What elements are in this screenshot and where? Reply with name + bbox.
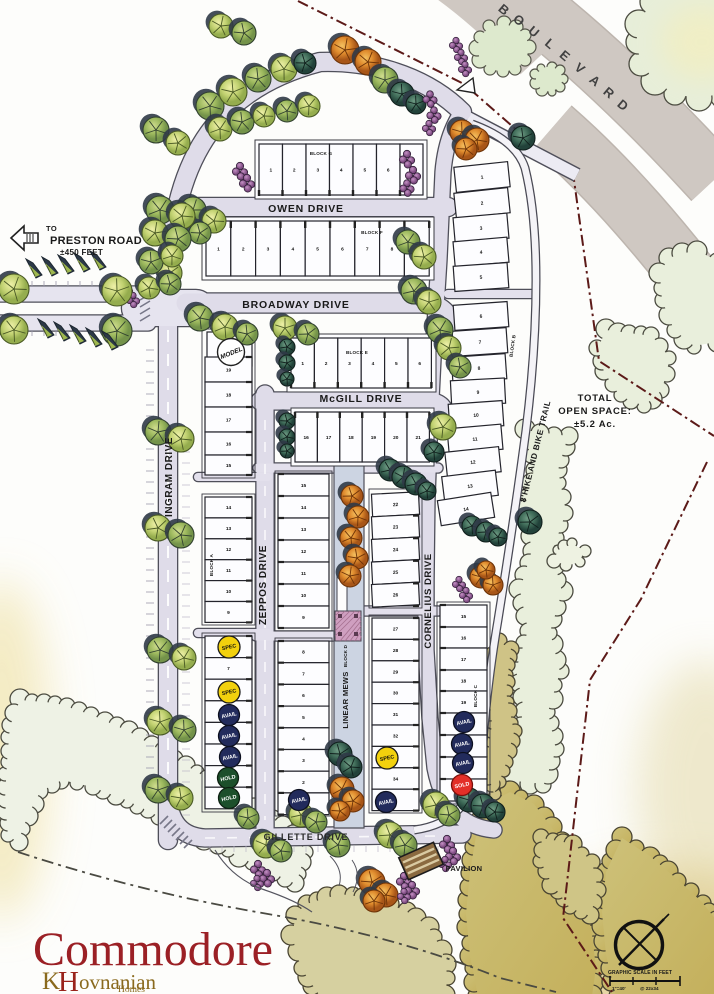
svg-text:INGRAM DRIVE: INGRAM DRIVE [164,437,175,517]
svg-text:7: 7 [227,666,230,672]
svg-text:11: 11 [472,437,478,443]
svg-text:13: 13 [301,527,307,533]
svg-text:12: 12 [226,547,232,553]
svg-text:6: 6 [418,361,421,367]
svg-text:24: 24 [393,547,399,553]
svg-text:10: 10 [301,593,307,599]
svg-text:19: 19 [371,435,377,441]
svg-text:25: 25 [393,570,399,576]
svg-text:18: 18 [461,678,467,684]
svg-text:ZEPPOS DRIVE: ZEPPOS DRIVE [258,545,269,625]
svg-text:7: 7 [302,671,305,677]
svg-text:22: 22 [393,502,399,508]
svg-text:BLOCK G: BLOCK G [310,151,333,156]
svg-text:4: 4 [372,361,375,367]
svg-text:21: 21 [416,435,422,441]
svg-text:4: 4 [291,246,294,252]
svg-text:GILLETTE DRIVE: GILLETTE DRIVE [264,832,349,842]
svg-text:BLOCK D: BLOCK D [343,644,348,667]
svg-text:29: 29 [393,669,399,675]
svg-text:17: 17 [226,417,232,423]
svg-text:±450 FEET: ±450 FEET [60,248,103,257]
svg-text:H: H [58,966,79,994]
svg-text:8: 8 [302,650,305,656]
svg-text:BLOCK F: BLOCK F [361,230,383,235]
svg-text:1"=40′: 1"=40′ [612,986,627,991]
svg-text:6: 6 [302,693,305,699]
svg-text:LINEAR MEWS: LINEAR MEWS [341,671,350,728]
svg-text:11: 11 [226,568,231,574]
svg-text:3: 3 [316,167,319,173]
svg-text:15: 15 [301,483,307,489]
svg-text:BLOCK A: BLOCK A [209,553,214,576]
svg-text:2: 2 [302,780,305,786]
svg-text:TOTAL: TOTAL [578,393,613,404]
svg-text:14: 14 [301,505,307,511]
svg-text:@ 22x34: @ 22x34 [640,986,659,991]
svg-text:16: 16 [461,635,467,641]
svg-text:TO: TO [46,224,57,233]
svg-text:30: 30 [393,691,399,697]
svg-text:1: 1 [217,246,220,252]
svg-text:27: 27 [393,627,399,633]
svg-text:32: 32 [393,734,399,740]
svg-text:34: 34 [393,776,399,782]
svg-text:20: 20 [393,435,399,441]
svg-text:19: 19 [461,700,467,706]
svg-text:2: 2 [325,361,328,367]
svg-text:9: 9 [227,610,230,616]
svg-text:3: 3 [267,246,270,252]
svg-text:5: 5 [395,361,398,367]
svg-text:12: 12 [301,549,307,555]
svg-text:17: 17 [326,435,332,441]
svg-text:10: 10 [226,589,232,595]
svg-text:5: 5 [316,246,319,252]
svg-text:GRAPHIC SCALE IN FEET: GRAPHIC SCALE IN FEET [608,970,672,976]
svg-text:11: 11 [301,571,306,577]
svg-text:PAVILION: PAVILION [446,864,483,873]
svg-text:BROADWAY DRIVE: BROADWAY DRIVE [242,299,349,311]
svg-text:15: 15 [461,614,467,620]
svg-text:13: 13 [226,526,232,532]
svg-text:26: 26 [393,592,399,598]
svg-text:3: 3 [348,361,351,367]
svg-text:CORNELIUS DRIVE: CORNELIUS DRIVE [423,553,434,648]
svg-text:18: 18 [348,435,354,441]
svg-text:OWEN DRIVE: OWEN DRIVE [268,203,344,215]
svg-text:8: 8 [391,246,394,252]
svg-text:Homes: Homes [118,985,145,994]
svg-text:±5.2 Ac.: ±5.2 Ac. [574,419,616,430]
svg-text:5: 5 [363,167,366,173]
svg-text:14: 14 [226,505,232,511]
svg-text:15: 15 [226,463,232,469]
svg-text:16: 16 [226,441,232,447]
svg-text:3: 3 [302,758,305,764]
svg-text:4: 4 [340,167,343,173]
svg-text:BLOCK C: BLOCK C [473,684,478,707]
svg-text:10: 10 [473,413,479,419]
svg-text:18: 18 [226,392,232,398]
svg-text:16: 16 [304,435,310,441]
svg-text:6: 6 [341,246,344,252]
svg-text:McGILL DRIVE: McGILL DRIVE [320,393,403,405]
svg-text:2: 2 [293,167,296,173]
svg-text:17: 17 [461,657,467,663]
svg-text:1: 1 [301,361,304,367]
svg-text:4: 4 [302,736,305,742]
svg-text:31: 31 [393,712,399,718]
svg-text:23: 23 [393,525,399,531]
svg-text:PRESTON ROAD: PRESTON ROAD [50,235,142,247]
svg-text:28: 28 [393,648,399,654]
svg-text:2: 2 [242,246,245,252]
svg-text:5: 5 [302,715,305,721]
svg-text:6: 6 [387,167,390,173]
svg-text:BLOCK E: BLOCK E [346,350,368,355]
svg-text:7: 7 [366,246,369,252]
svg-text:OPEN SPACE:: OPEN SPACE: [558,406,632,417]
svg-text:9: 9 [302,615,305,621]
svg-text:13: 13 [467,483,473,490]
svg-text:12: 12 [470,459,476,466]
svg-text:1: 1 [269,167,272,173]
svg-text:19: 19 [226,367,232,373]
